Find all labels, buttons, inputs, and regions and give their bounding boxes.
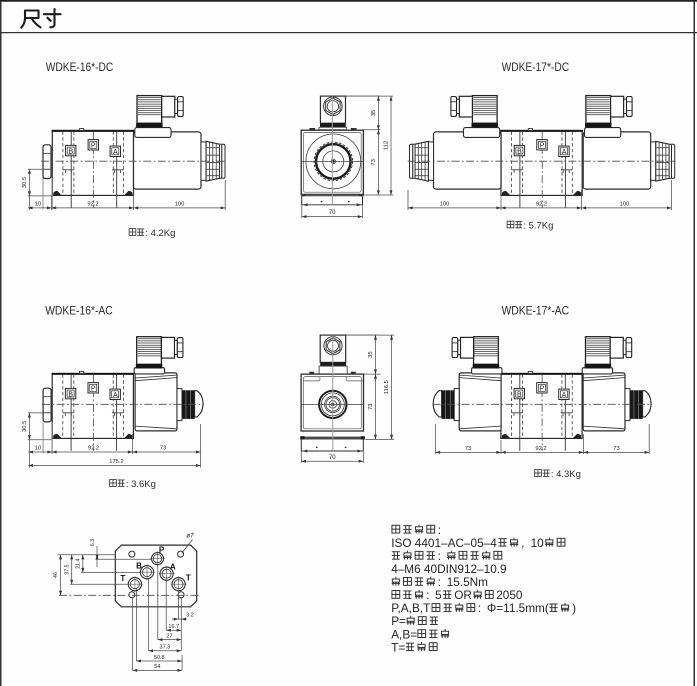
svg-text:B: B xyxy=(136,562,142,571)
svg-text:35: 35 xyxy=(371,110,377,116)
svg-text:35: 35 xyxy=(368,351,374,357)
svg-text:73: 73 xyxy=(368,404,374,410)
svg-text:92.2: 92.2 xyxy=(536,201,547,207)
svg-text:B: B xyxy=(517,148,522,155)
svg-text:A: A xyxy=(562,392,567,399)
svg-text:: 4.2Kg: : 4.2Kg xyxy=(145,228,175,239)
svg-text:WDKE-16*-DC: WDKE-16*-DC xyxy=(46,60,114,74)
svg-text:ISO 4401–AC–05–4: ISO 4401–AC–05–4 xyxy=(391,536,497,550)
svg-text::: : xyxy=(426,588,429,602)
svg-text:70: 70 xyxy=(329,210,336,216)
svg-text:P=: P= xyxy=(391,614,406,628)
svg-text:37.5: 37.5 xyxy=(64,564,70,574)
svg-text:92.2: 92.2 xyxy=(88,445,99,451)
svg-text:P: P xyxy=(91,386,96,393)
svg-text:50.8: 50.8 xyxy=(154,655,165,661)
svg-text:P: P xyxy=(540,386,545,393)
svg-text:116.5: 116.5 xyxy=(384,380,390,394)
svg-text:P,A,B,T: P,A,B,T xyxy=(391,601,430,615)
svg-text:2050: 2050 xyxy=(496,588,523,602)
svg-text:: 3.6Kg: : 3.6Kg xyxy=(126,479,156,490)
svg-text:73: 73 xyxy=(465,446,471,452)
svg-text:OR: OR xyxy=(454,588,472,602)
svg-text:B: B xyxy=(68,148,73,155)
svg-text:100: 100 xyxy=(620,201,630,207)
svg-text::: : xyxy=(438,523,441,537)
svg-text:100: 100 xyxy=(175,201,185,207)
svg-text:70: 70 xyxy=(329,455,336,461)
svg-text:,: , xyxy=(521,536,524,550)
svg-text:92.2: 92.2 xyxy=(535,446,546,452)
svg-text:A,B=: A,B= xyxy=(391,627,417,641)
svg-text:6.3: 6.3 xyxy=(90,539,96,546)
svg-text::: : xyxy=(478,601,481,615)
svg-text:T=: T= xyxy=(391,640,405,654)
svg-text:Φ=11.5mm(: Φ=11.5mm( xyxy=(487,601,549,615)
svg-text::: : xyxy=(438,549,441,563)
svg-text:T: T xyxy=(120,574,125,583)
svg-text:ø7: ø7 xyxy=(186,533,194,540)
svg-text:30.5: 30.5 xyxy=(22,421,28,432)
svg-text:73: 73 xyxy=(371,159,377,165)
svg-text:16.7: 16.7 xyxy=(168,624,179,630)
svg-text:5: 5 xyxy=(435,588,442,602)
svg-text:: 4.3Kg: : 4.3Kg xyxy=(551,469,581,480)
svg-text:15.5Nm: 15.5Nm xyxy=(447,575,488,589)
svg-text:A: A xyxy=(113,392,118,399)
svg-text:WDKE-17*-DC: WDKE-17*-DC xyxy=(502,60,570,74)
svg-text:WDKE-16*-AC: WDKE-16*-AC xyxy=(45,304,113,318)
svg-text:A: A xyxy=(113,149,118,156)
svg-text:A: A xyxy=(170,563,176,572)
svg-text:P: P xyxy=(91,143,96,150)
svg-text:30.5: 30.5 xyxy=(22,177,28,188)
svg-text:37.3: 37.3 xyxy=(160,645,171,651)
svg-text:10: 10 xyxy=(531,536,545,550)
svg-text:46: 46 xyxy=(53,572,59,578)
svg-text:: 5.7Kg: : 5.7Kg xyxy=(523,221,553,232)
svg-text::: : xyxy=(438,575,441,589)
svg-text:175.2: 175.2 xyxy=(109,459,124,465)
svg-text:WDKE-17*-AC: WDKE-17*-AC xyxy=(502,304,570,318)
svg-text:B: B xyxy=(68,391,73,398)
svg-text:100: 100 xyxy=(440,201,450,207)
svg-text:4–M6 40DIN912–10.9: 4–M6 40DIN912–10.9 xyxy=(391,562,506,576)
svg-text:P: P xyxy=(540,143,545,150)
svg-text:112: 112 xyxy=(384,141,390,150)
svg-text:): ) xyxy=(572,601,576,615)
svg-text:27: 27 xyxy=(166,633,172,639)
svg-text:T: T xyxy=(186,574,191,583)
svg-text:10: 10 xyxy=(35,445,41,451)
svg-text:3.2: 3.2 xyxy=(186,613,194,619)
svg-text:B: B xyxy=(517,391,522,398)
svg-text:P: P xyxy=(159,546,165,555)
svg-text:A: A xyxy=(562,149,567,156)
svg-text:21.4: 21.4 xyxy=(75,558,81,568)
svg-text:92.2: 92.2 xyxy=(87,201,98,207)
svg-text:10: 10 xyxy=(35,201,41,207)
svg-text:73: 73 xyxy=(613,446,619,452)
svg-text:54: 54 xyxy=(154,664,160,670)
svg-text:73: 73 xyxy=(160,445,166,451)
